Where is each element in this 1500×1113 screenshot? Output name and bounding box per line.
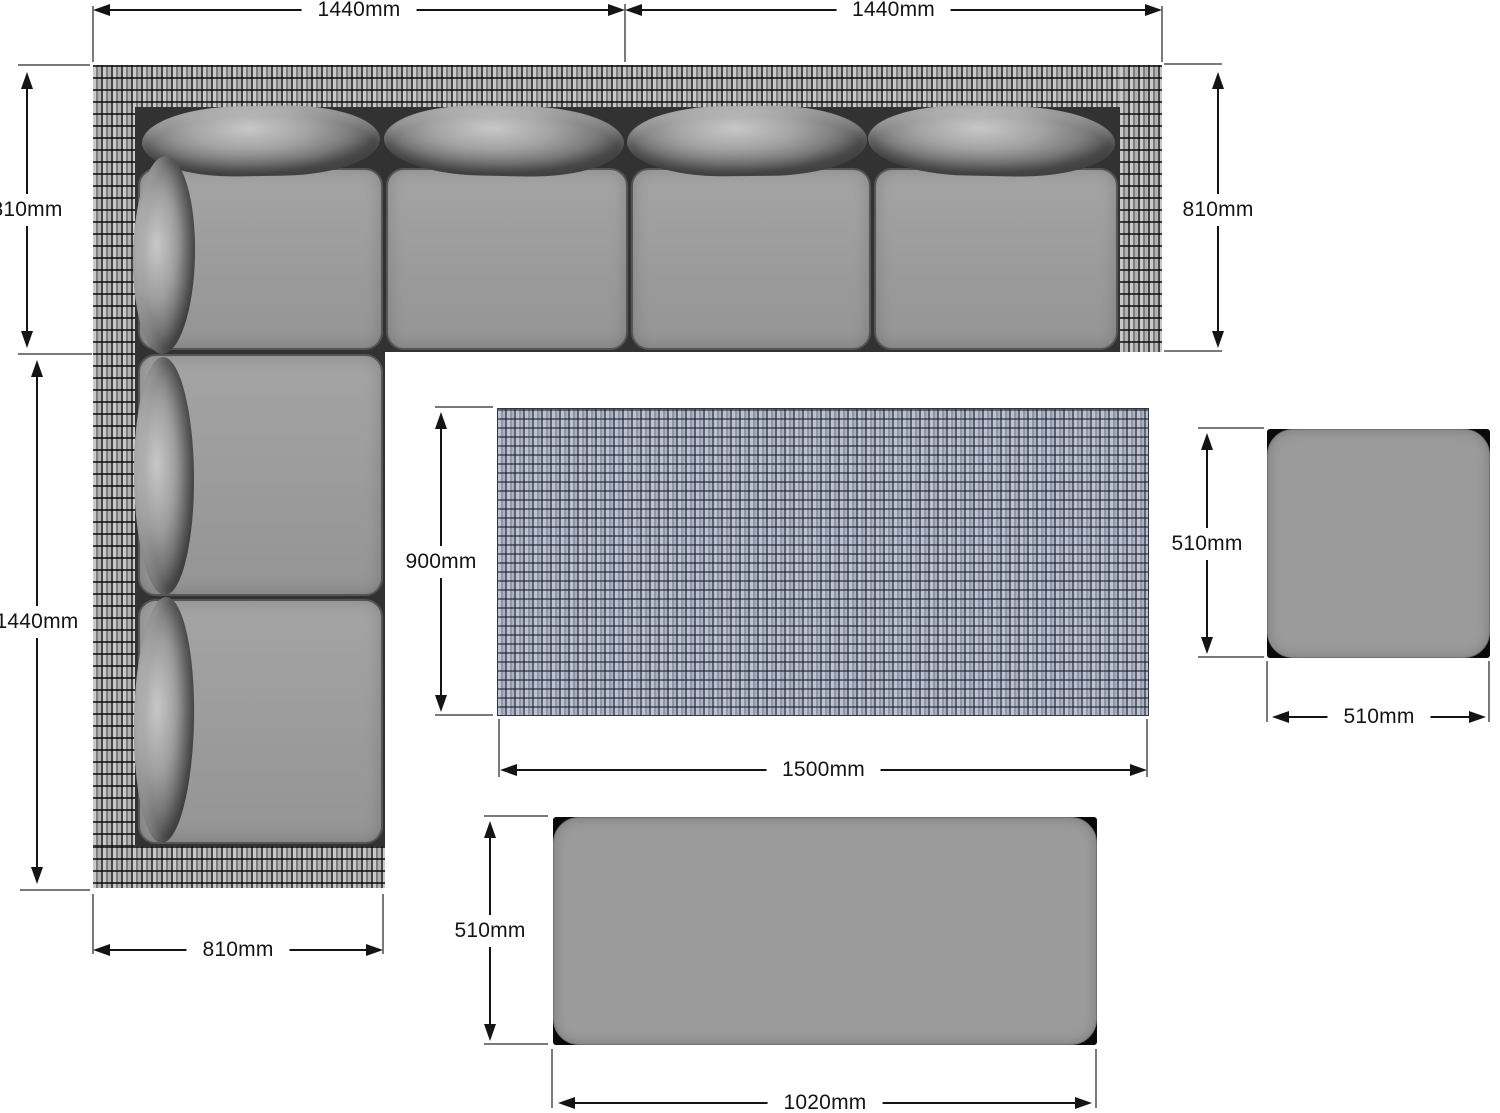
extension-line (1488, 661, 1490, 722)
extension-line (1266, 661, 1268, 722)
extension-line (1164, 63, 1222, 65)
arrowhead-down-icon (21, 331, 33, 348)
dimension-label: 810mm (186, 937, 289, 963)
arrowhead-right-icon (1075, 1097, 1092, 1109)
dimension-label: 810mm (0, 194, 70, 226)
arrowhead-right-icon (1145, 4, 1162, 16)
dimension-label: 1020mm (768, 1090, 883, 1113)
arrowhead-down-icon (435, 695, 447, 712)
sofa-back-band-left (93, 65, 135, 848)
stool-top (1267, 429, 1490, 658)
table-top (497, 408, 1149, 716)
arrowhead-down-icon (1212, 331, 1224, 348)
seat-cushion (631, 168, 871, 350)
bench-top (553, 817, 1097, 1045)
diagram-canvas: 1440mm 1440mm 810mm 1440mm 810mm 810mm 9… (0, 0, 1500, 1113)
dimension-label: 1440mm (836, 0, 951, 23)
extension-line (435, 714, 493, 716)
arrowhead-down-icon (31, 867, 43, 884)
back-pillow (627, 105, 868, 177)
arrowhead-right-icon (608, 4, 625, 16)
extension-line (551, 1049, 553, 1108)
stool-cushion (1267, 429, 1490, 658)
extension-line (1164, 350, 1222, 352)
arrowhead-down-icon (484, 1024, 496, 1041)
arrowhead-right-icon (1469, 711, 1486, 723)
arrowhead-down-icon (1201, 637, 1213, 654)
extension-line (1198, 427, 1264, 429)
sofa-back-band-top (93, 65, 1162, 107)
dimension-label: 1500mm (766, 757, 881, 783)
dimension-label: 1440mm (302, 0, 417, 23)
seat-cushion (874, 168, 1118, 350)
sofa-arm-band-bottom (93, 846, 385, 888)
sofa-arm-band-right (1120, 65, 1162, 352)
extension-line (484, 1043, 548, 1045)
extension-line (1198, 656, 1264, 658)
dimension-label: 1440mm (0, 606, 85, 638)
dimension-label: 510mm (1327, 704, 1430, 730)
extension-line (484, 815, 548, 817)
arrowhead-right-icon (1130, 764, 1147, 776)
arrowhead-right-icon (366, 944, 383, 956)
dimension-label: 900mm (398, 546, 483, 578)
extension-line (18, 353, 92, 355)
extension-line (20, 889, 90, 891)
extension-line (1095, 1049, 1097, 1108)
extension-line (435, 406, 493, 408)
dimension-label: 510mm (1164, 528, 1249, 560)
seat-cushion (386, 168, 628, 350)
bench-cushion (553, 817, 1097, 1045)
dimension-label: 810mm (1175, 194, 1260, 226)
extension-line (18, 64, 90, 66)
dimension-label: 510mm (447, 915, 532, 947)
